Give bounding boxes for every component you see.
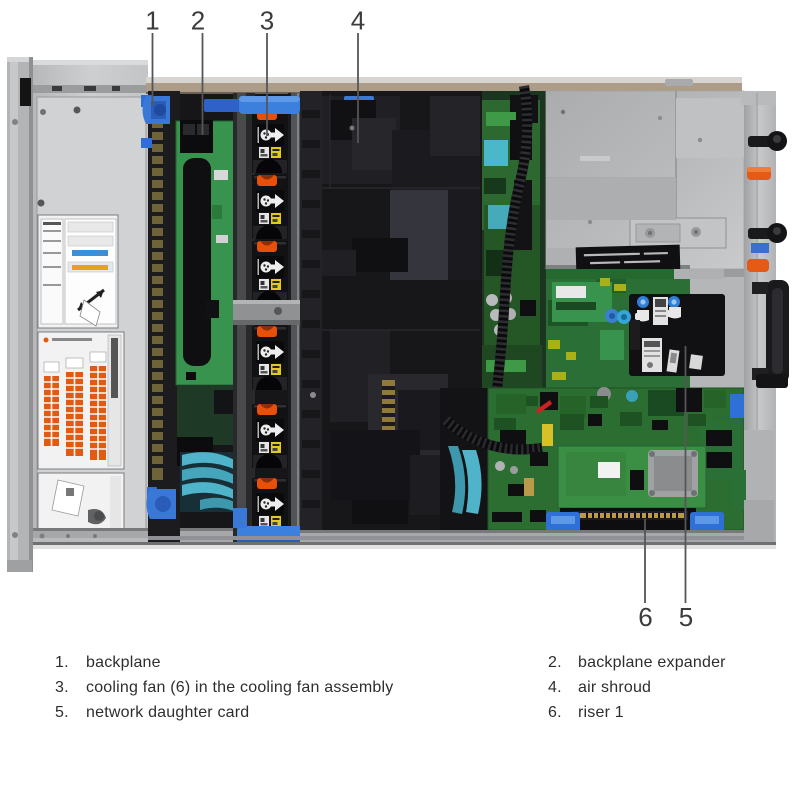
svg-text:2.: 2. <box>548 654 562 671</box>
svg-text:5.: 5. <box>55 704 69 721</box>
svg-text:3: 3 <box>260 6 274 36</box>
svg-text:backplane: backplane <box>86 654 161 671</box>
svg-text:backplane expander: backplane expander <box>578 654 726 671</box>
svg-text:4: 4 <box>351 6 365 36</box>
svg-text:riser 1: riser 1 <box>578 704 624 721</box>
svg-text:3.: 3. <box>55 679 69 696</box>
svg-text:network daughter card: network daughter card <box>86 704 249 721</box>
svg-text:air shroud: air shroud <box>578 679 651 696</box>
svg-text:5: 5 <box>679 602 693 632</box>
svg-text:1: 1 <box>145 6 159 36</box>
svg-text:2: 2 <box>191 6 205 36</box>
svg-text:4.: 4. <box>548 679 562 696</box>
svg-text:6.: 6. <box>548 704 562 721</box>
svg-text:6: 6 <box>638 602 652 632</box>
svg-text:cooling fan (6) in the cooling: cooling fan (6) in the cooling fan assem… <box>86 679 393 696</box>
svg-text:1.: 1. <box>55 654 69 671</box>
